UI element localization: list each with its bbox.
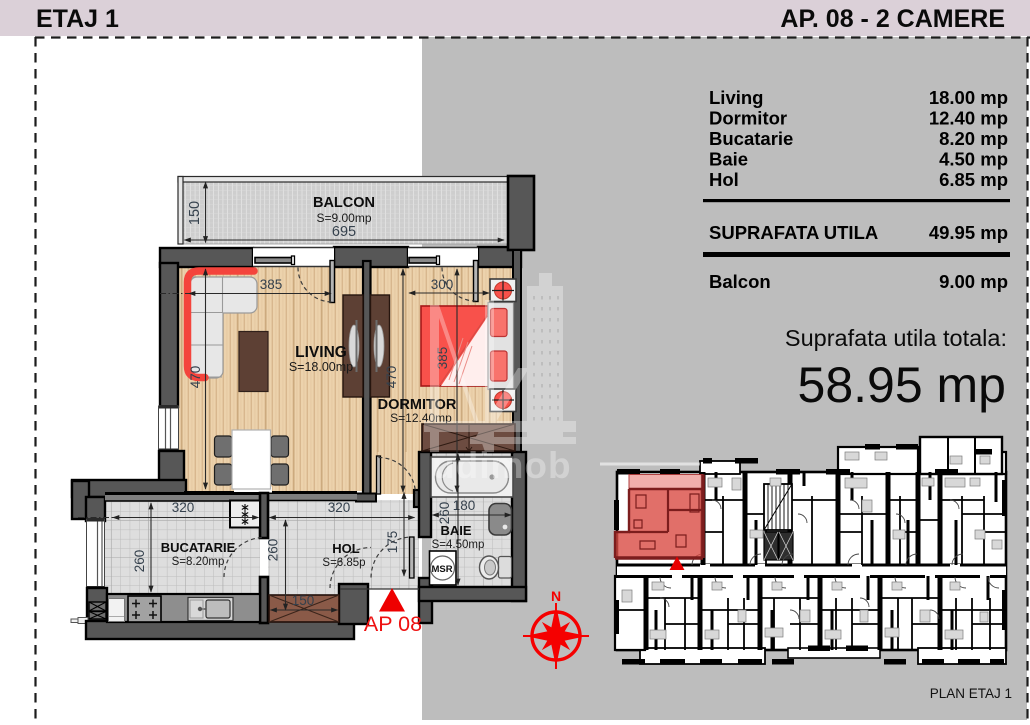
svg-text:Baie: Baie (709, 149, 748, 170)
svg-text:18.00 mp: 18.00 mp (929, 87, 1008, 108)
svg-text:150: 150 (187, 201, 203, 225)
svg-text:175: 175 (385, 531, 400, 554)
svg-text:300: 300 (431, 277, 454, 292)
svg-text:Hol: Hol (709, 169, 739, 190)
svg-text:470: 470 (188, 366, 203, 389)
svg-text:4.50 mp: 4.50 mp (939, 149, 1008, 170)
svg-text:470: 470 (384, 366, 399, 389)
svg-text:6.85 mp: 6.85 mp (939, 169, 1008, 190)
svg-text:S=18.00mp: S=18.00mp (289, 360, 353, 374)
svg-text:MSR: MSR (431, 564, 452, 575)
svg-text:49.95 mp: 49.95 mp (929, 222, 1008, 243)
svg-text:HOL: HOL (332, 541, 360, 556)
svg-text:S=6.85p: S=6.85p (322, 557, 365, 569)
svg-text:BALCON: BALCON (313, 195, 375, 211)
svg-text:AP 08: AP 08 (364, 612, 422, 636)
svg-text:udimob: udimob (432, 445, 572, 486)
svg-text:12.40 mp: 12.40 mp (929, 108, 1008, 129)
svg-text:Bucatarie: Bucatarie (709, 128, 793, 149)
svg-text:Suprafata utila totala:: Suprafata utila totala: (785, 325, 1007, 351)
svg-text:180: 180 (453, 498, 476, 513)
svg-text:AP. 08 - 2 CAMERE: AP. 08 - 2 CAMERE (780, 5, 1005, 33)
svg-text:385: 385 (260, 277, 283, 292)
svg-text:S=4.50mp: S=4.50mp (432, 539, 485, 551)
svg-text:BAIE: BAIE (440, 523, 471, 538)
svg-text:S=9.00mp: S=9.00mp (316, 211, 371, 225)
svg-text:150: 150 (292, 593, 315, 608)
svg-text:8.20 mp: 8.20 mp (939, 128, 1008, 149)
svg-text:SUPRAFATA UTILA: SUPRAFATA UTILA (709, 222, 878, 243)
svg-text:320: 320 (328, 500, 351, 515)
svg-text:260: 260 (437, 502, 452, 525)
svg-text:695: 695 (332, 224, 356, 240)
svg-text:BUCATARIE: BUCATARIE (161, 540, 236, 555)
svg-text:N: N (551, 588, 561, 604)
svg-text:Dormitor: Dormitor (709, 108, 787, 129)
svg-text:320: 320 (172, 500, 195, 515)
svg-text:58.95 mp: 58.95 mp (798, 357, 1006, 413)
svg-text:LIVING: LIVING (295, 344, 347, 361)
svg-text:Balcon: Balcon (709, 271, 771, 292)
svg-text:260: 260 (132, 550, 147, 573)
svg-text:ETAJ 1: ETAJ 1 (36, 5, 119, 33)
svg-text:260: 260 (266, 539, 281, 562)
svg-text:9.00 mp: 9.00 mp (939, 271, 1008, 292)
svg-text:S=8.20mp: S=8.20mp (172, 556, 225, 568)
svg-text:PLAN ETAJ 1: PLAN ETAJ 1 (930, 686, 1012, 701)
svg-text:Living: Living (709, 87, 763, 108)
